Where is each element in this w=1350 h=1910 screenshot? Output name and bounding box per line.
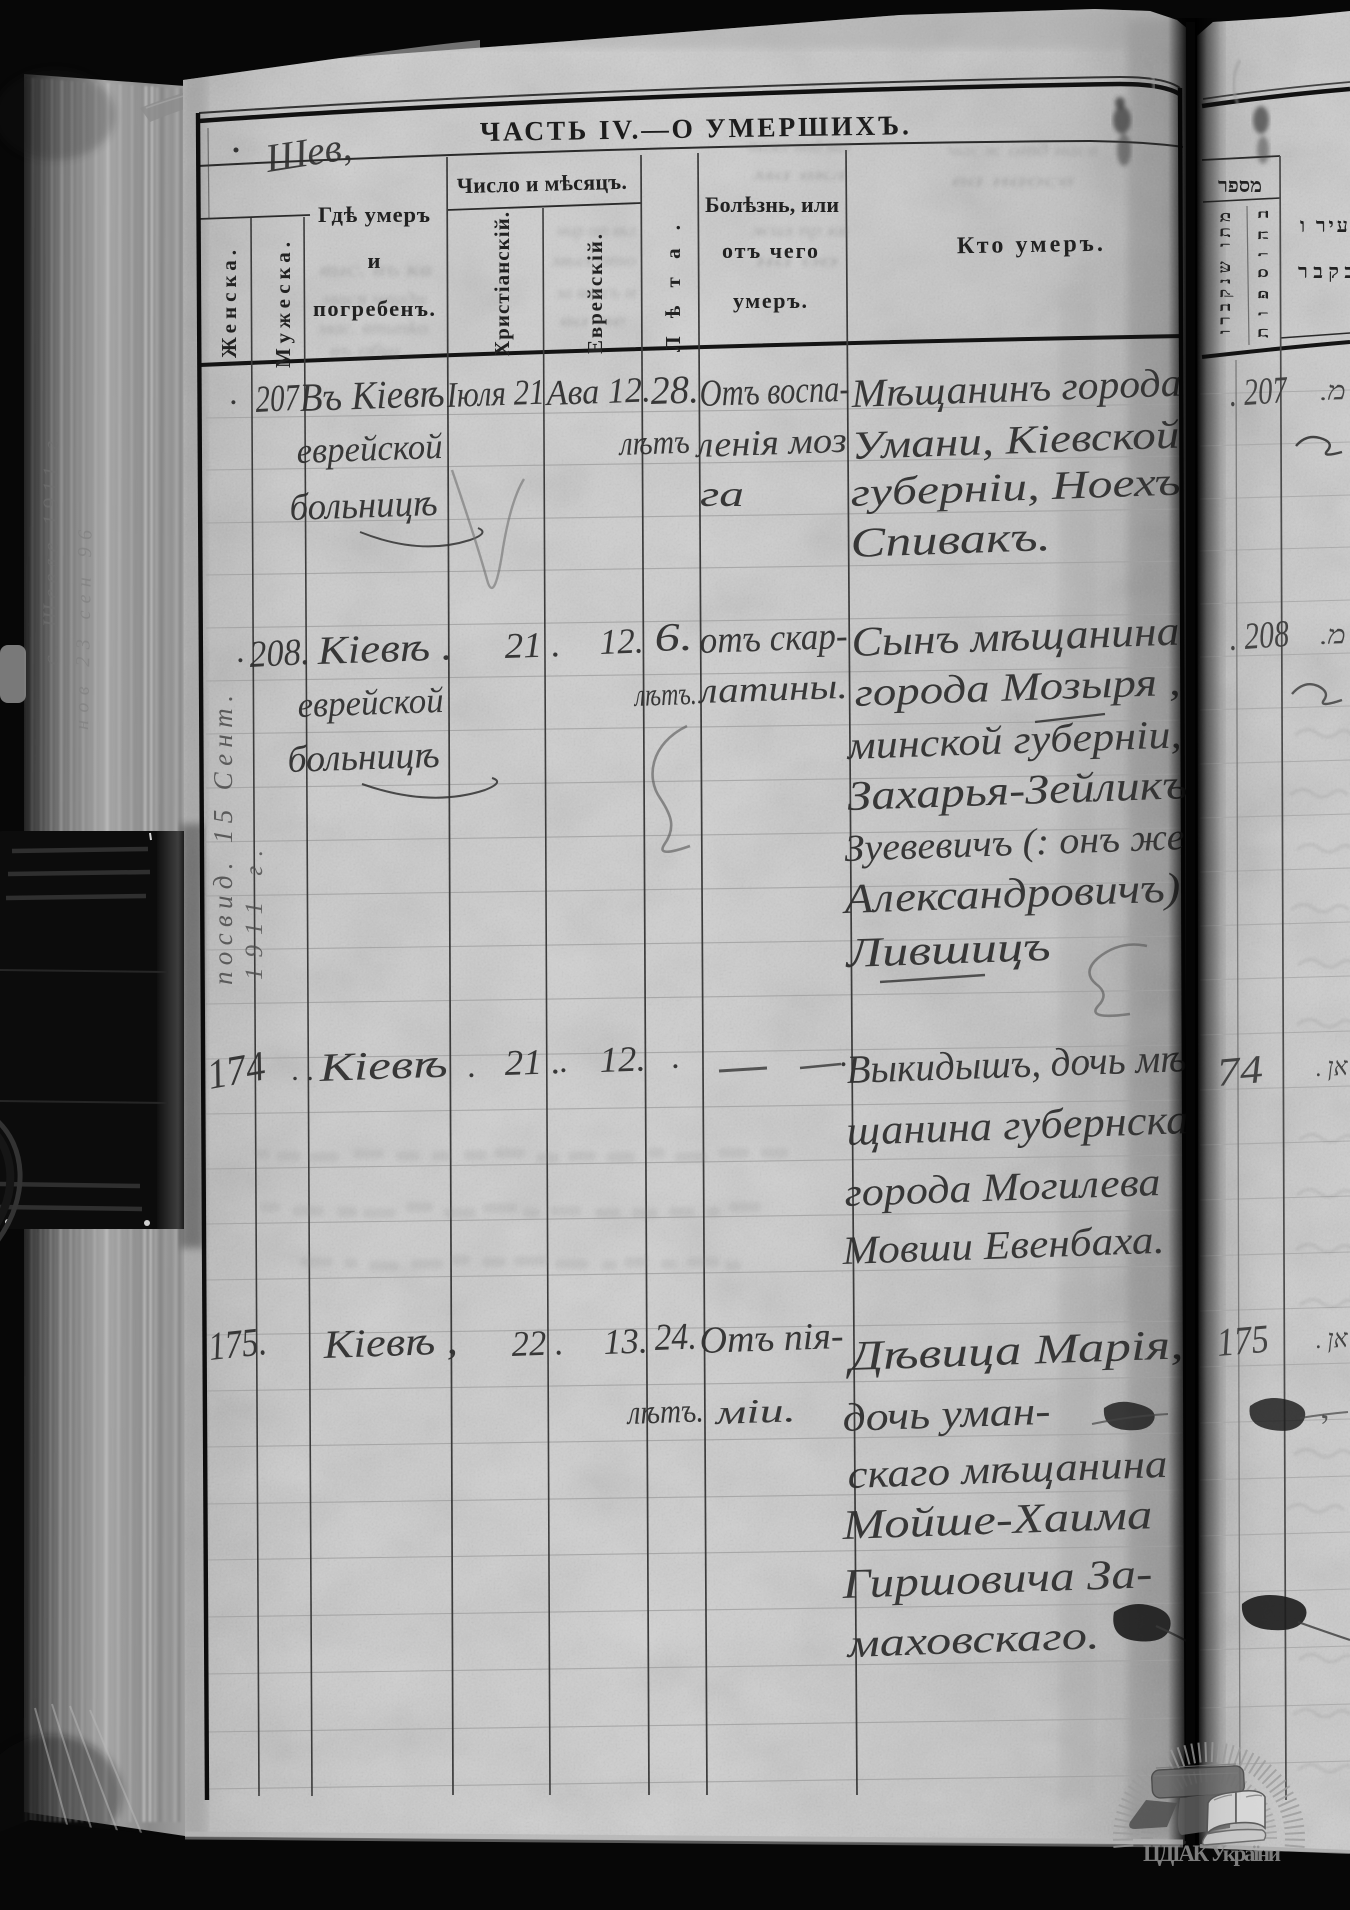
svg-text:Число и мѣсяцъ.: Число и мѣсяцъ. bbox=[457, 169, 628, 198]
svg-text:за внесъ м: за внесъ м bbox=[555, 282, 637, 302]
svg-text:ва наосв: ва наосв bbox=[952, 170, 1074, 190]
svg-text:207: 207 bbox=[254, 377, 302, 421]
svg-text:24.: 24. bbox=[654, 1316, 697, 1359]
svg-text:Христіанскій.: Христіанскій. bbox=[490, 212, 514, 356]
svg-text:13.: 13. bbox=[603, 1320, 648, 1362]
svg-text:на оо: на оо bbox=[756, 251, 838, 270]
svg-text:175: 175 bbox=[1215, 1316, 1271, 1365]
svg-text:.: . bbox=[468, 1048, 477, 1085]
svg-text:.: . bbox=[560, 1043, 569, 1080]
svg-text:дочь уман-: дочь уман- bbox=[842, 1388, 1051, 1440]
svg-text:тоже отд нал: тоже отд нал bbox=[748, 136, 850, 156]
svg-text:вис. въ кв: вис. въ кв bbox=[320, 259, 432, 281]
svg-text:ва пе: ва пе bbox=[560, 311, 627, 330]
svg-text:28.: 28. bbox=[650, 366, 700, 413]
svg-text:Кіевѣ ,: Кіевѣ , bbox=[322, 1317, 459, 1367]
svg-text:21 .: 21 . bbox=[504, 1041, 561, 1083]
svg-text:.: . bbox=[237, 633, 246, 670]
svg-text:жил пр кв: жил пр кв bbox=[750, 220, 848, 240]
svg-text:Кіевѣ: Кіевѣ bbox=[317, 1041, 448, 1090]
svg-text:мася чвидн: мася чвидн bbox=[321, 289, 426, 310]
svg-text:. 207: . 207 bbox=[1228, 369, 1290, 415]
svg-text:посвид. 15 Сент.: посвид. 15 Сент. bbox=[208, 695, 238, 985]
svg-text:Кто умеръ.: Кто умеръ. bbox=[957, 231, 1103, 260]
svg-text:мыл ото: мыл ото bbox=[551, 250, 636, 270]
svg-text:маховскаго.: маховскаго. bbox=[844, 1612, 1100, 1666]
svg-text:י: י bbox=[1320, 1406, 1328, 1439]
svg-text:Мужеска.: Мужеска. bbox=[271, 242, 295, 368]
svg-text:ленія моз: ленія моз bbox=[694, 420, 847, 465]
svg-text:Болѣзнь, или: Болѣзнь, или bbox=[705, 192, 839, 217]
svg-text:.מ: .מ bbox=[1319, 620, 1346, 650]
svg-text:Іюля 21: Іюля 21 bbox=[445, 372, 545, 415]
svg-text:. אן: . אן bbox=[1315, 1324, 1349, 1354]
svg-text:12.: 12. bbox=[599, 620, 644, 662]
svg-text:лѣтъ: лѣтъ bbox=[617, 424, 690, 463]
svg-text:208.: 208. bbox=[248, 631, 310, 676]
svg-text:Гдѣ умеръ: Гдѣ умеръ bbox=[318, 202, 430, 227]
svg-text:6.: 6. bbox=[654, 614, 694, 660]
svg-text:. אן: . אן bbox=[1315, 1052, 1349, 1082]
svg-text:12.: 12. bbox=[599, 1038, 646, 1080]
svg-text:лѣтъ.: лѣтъ. bbox=[625, 1392, 704, 1432]
svg-text:еврейской: еврейской bbox=[297, 680, 444, 725]
svg-text:עיר ו: עיר ו bbox=[1300, 215, 1348, 237]
svg-text:Отъ воспа-: Отъ воспа- bbox=[699, 368, 850, 415]
svg-text:ма вкл: ма вкл bbox=[750, 165, 846, 184]
svg-text:. .: . . bbox=[292, 1054, 315, 1087]
svg-text:больницѣ: больницѣ bbox=[287, 734, 440, 781]
svg-text:ЦДІАК України: ЦДІАК України bbox=[1143, 1841, 1281, 1866]
svg-text:175.: 175. bbox=[206, 1318, 268, 1369]
svg-text:въ общ: въ общ bbox=[330, 341, 400, 360]
svg-text:22 .: 22 . bbox=[511, 1322, 564, 1364]
svg-text:. 208: . 208 bbox=[1228, 613, 1291, 659]
svg-text:га: га bbox=[700, 474, 744, 514]
svg-text:латины.: латины. bbox=[697, 666, 849, 711]
svg-text:מספר: מספר bbox=[1218, 175, 1262, 197]
svg-text:часж отд насв: часж отд насв bbox=[948, 140, 1098, 161]
svg-text:отъ скар-: отъ скар- bbox=[699, 615, 848, 662]
svg-text:больницѣ: больницѣ bbox=[289, 482, 438, 529]
svg-text:Отъ пія-: Отъ пія- bbox=[699, 1315, 844, 1362]
svg-text:.מ: .מ bbox=[1319, 376, 1346, 406]
svg-text:21 .: 21 . bbox=[504, 624, 561, 666]
svg-text:Ава 12.: Ава 12. bbox=[544, 369, 651, 413]
svg-text:.: . bbox=[230, 375, 239, 412]
svg-text:міи.: міи. bbox=[714, 1392, 797, 1432]
svg-text:Лившицъ: Лившицъ bbox=[843, 924, 1051, 977]
svg-text:Въ Кіевѣ: Въ Кіевѣ bbox=[299, 370, 445, 420]
svg-text:мир от вкл: мир от вкл bbox=[555, 220, 636, 240]
svg-text:Спивакъ.: Спивакъ. bbox=[850, 514, 1051, 567]
svg-text:74: 74 bbox=[1215, 1046, 1265, 1095]
svg-text:.: . bbox=[672, 1039, 681, 1076]
svg-text:Кіевѣ .: Кіевѣ . bbox=[316, 623, 454, 673]
svg-text:мас. вmunkо: мас. вmunkо bbox=[317, 318, 428, 339]
svg-text:лѣтъ.: лѣтъ. bbox=[632, 675, 697, 713]
svg-text:еврейской: еврейской bbox=[296, 426, 443, 471]
